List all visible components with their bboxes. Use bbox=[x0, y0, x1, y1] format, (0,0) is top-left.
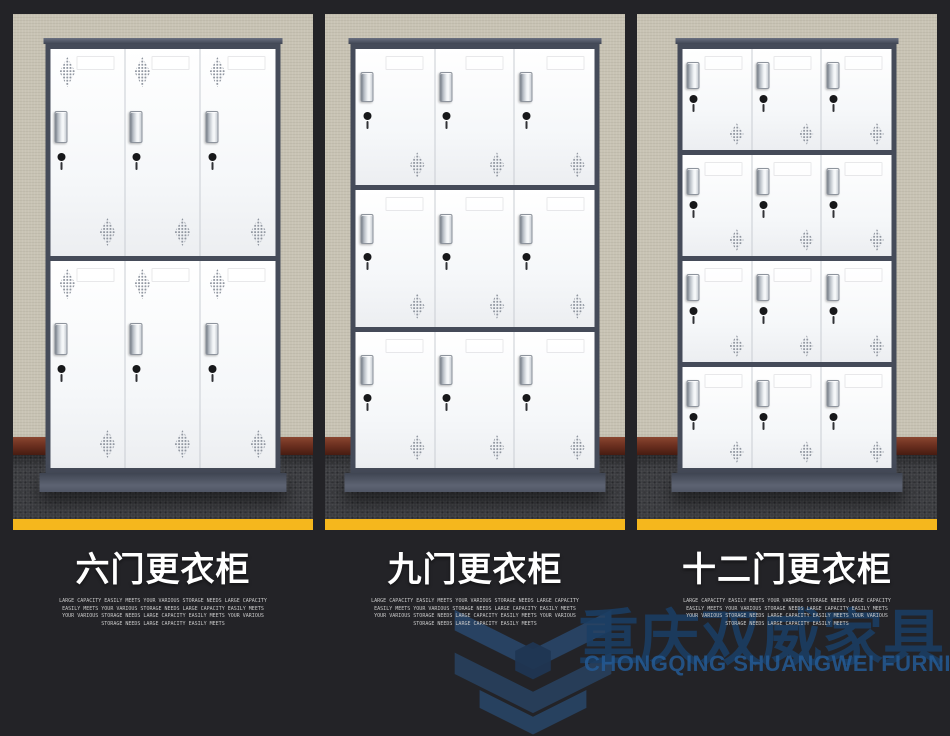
keyhole-lock-icon bbox=[523, 253, 531, 261]
vent-grille-bottom-icon bbox=[870, 441, 884, 463]
description-line: EASILY MEETS YOUR VARIOUS STORAGE NEEDS … bbox=[38, 606, 288, 614]
vent-grille-bottom-icon bbox=[870, 229, 884, 251]
vent-grille-bottom-icon bbox=[251, 430, 267, 458]
label-card-slot bbox=[844, 268, 882, 282]
vent-grille-bottom-icon bbox=[100, 218, 116, 246]
label-card-slot bbox=[546, 197, 584, 211]
door-handle bbox=[756, 168, 769, 195]
keyhole-lock-icon bbox=[829, 307, 837, 315]
locker-door bbox=[515, 190, 595, 326]
label-card-slot bbox=[844, 162, 882, 176]
label-card-slot bbox=[704, 374, 742, 388]
description-line: LARGE CAPACITY EASILY MEETS YOUR VARIOUS… bbox=[38, 598, 288, 606]
keyhole-lock-icon bbox=[523, 394, 531, 402]
vent-grille-bottom-icon bbox=[410, 152, 425, 177]
label-card-slot bbox=[546, 56, 584, 70]
yellow-accent-bar bbox=[13, 519, 313, 530]
label-card-slot bbox=[386, 56, 424, 70]
door-handle bbox=[205, 111, 218, 143]
label-card-slot bbox=[152, 268, 190, 282]
door-handle bbox=[440, 214, 453, 244]
keyhole-lock-icon bbox=[443, 253, 451, 261]
locker-door bbox=[683, 155, 753, 256]
label-card-slot bbox=[704, 56, 742, 70]
product-description: LARGE CAPACITY EASILY MEETS YOUR VARIOUS… bbox=[662, 598, 912, 628]
locker-door bbox=[683, 49, 753, 150]
locker-door bbox=[822, 261, 892, 362]
label-card-slot bbox=[774, 162, 812, 176]
door-handle bbox=[55, 111, 68, 143]
door-handle bbox=[360, 72, 373, 102]
locker-door bbox=[515, 332, 595, 468]
locker-door bbox=[435, 49, 515, 185]
door-handle bbox=[756, 380, 769, 407]
description-line: STORAGE NEEDS LARGE CAPACITY EASILY MEET… bbox=[350, 621, 600, 629]
vent-grille-bottom-icon bbox=[489, 294, 504, 319]
description-line: YOUR VARIOUS STORAGE NEEDS LARGE CAPACIT… bbox=[662, 613, 912, 621]
label-card-slot bbox=[386, 339, 424, 353]
locker-door bbox=[356, 332, 436, 468]
locker-door bbox=[752, 367, 822, 468]
label-card-slot bbox=[774, 374, 812, 388]
vent-grille-bottom-icon bbox=[730, 441, 744, 463]
keyhole-lock-icon bbox=[208, 153, 216, 161]
locker-door bbox=[683, 261, 753, 362]
product-panel: 十二门更衣柜 LARGE CAPACITY EASILY MEETS YOUR … bbox=[637, 14, 937, 708]
cabinet-base bbox=[40, 473, 287, 492]
label-card-slot bbox=[228, 56, 266, 70]
door-handle bbox=[440, 355, 453, 385]
description-line: LARGE CAPACITY EASILY MEETS YOUR VARIOUS… bbox=[350, 598, 600, 606]
vent-grille-bottom-icon bbox=[410, 435, 425, 460]
label-card-slot bbox=[466, 339, 504, 353]
product-photo bbox=[325, 14, 625, 519]
label-card-slot bbox=[844, 56, 882, 70]
vent-grille-bottom-icon bbox=[489, 435, 504, 460]
label-card-slot bbox=[774, 268, 812, 282]
product-photo bbox=[13, 14, 313, 519]
keyhole-lock-icon bbox=[363, 112, 371, 120]
keyhole-lock-icon bbox=[58, 153, 66, 161]
vent-grille-bottom-icon bbox=[489, 152, 504, 177]
door-handle bbox=[756, 62, 769, 89]
keyhole-lock-icon bbox=[829, 201, 837, 209]
locker-door bbox=[201, 261, 276, 468]
door-handle bbox=[130, 323, 143, 355]
vent-grille-bottom-icon bbox=[100, 430, 116, 458]
locker-door bbox=[822, 367, 892, 468]
locker-door bbox=[822, 155, 892, 256]
keyhole-lock-icon bbox=[443, 112, 451, 120]
keyhole-lock-icon bbox=[759, 307, 767, 315]
locker-cabinet bbox=[351, 44, 600, 492]
door-handle bbox=[360, 355, 373, 385]
door-handle bbox=[360, 214, 373, 244]
keyhole-lock-icon bbox=[690, 307, 698, 315]
vent-grille-top-icon bbox=[134, 57, 150, 87]
locker-door bbox=[126, 49, 201, 256]
keyhole-lock-icon bbox=[690, 413, 698, 421]
vent-grille-bottom-icon bbox=[175, 430, 191, 458]
vent-grille-bottom-icon bbox=[251, 218, 267, 246]
vent-grille-bottom-icon bbox=[799, 335, 813, 357]
cabinet-base bbox=[345, 473, 606, 492]
keyhole-lock-icon bbox=[690, 201, 698, 209]
product-panel: 九门更衣柜 LARGE CAPACITY EASILY MEETS YOUR V… bbox=[325, 14, 625, 708]
label-card-slot bbox=[844, 374, 882, 388]
door-handle bbox=[205, 323, 218, 355]
locker-door bbox=[356, 49, 436, 185]
description-line: STORAGE NEEDS LARGE CAPACITY EASILY MEET… bbox=[38, 621, 288, 629]
locker-door bbox=[51, 49, 126, 256]
yellow-accent-bar bbox=[325, 519, 625, 530]
locker-door bbox=[515, 49, 595, 185]
vent-grille-bottom-icon bbox=[870, 335, 884, 357]
vent-grille-bottom-icon bbox=[799, 441, 813, 463]
locker-door bbox=[356, 190, 436, 326]
vent-grille-bottom-icon bbox=[730, 229, 744, 251]
vent-grille-top-icon bbox=[210, 57, 226, 87]
door-handle bbox=[687, 168, 700, 195]
door-handle bbox=[440, 72, 453, 102]
locker-door bbox=[822, 49, 892, 150]
vent-grille-top-icon bbox=[210, 269, 226, 299]
keyhole-lock-icon bbox=[363, 394, 371, 402]
label-card-slot bbox=[386, 197, 424, 211]
product-description: LARGE CAPACITY EASILY MEETS YOUR VARIOUS… bbox=[38, 598, 288, 628]
panel-info: 十二门更衣柜 LARGE CAPACITY EASILY MEETS YOUR … bbox=[637, 551, 937, 708]
cabinet-frame bbox=[351, 44, 600, 473]
label-card-slot bbox=[228, 268, 266, 282]
description-line: YOUR VARIOUS STORAGE NEEDS LARGE CAPACIT… bbox=[38, 613, 288, 621]
product-detail-page: { "colors": { "background": "#232327", "… bbox=[0, 0, 950, 687]
keyhole-lock-icon bbox=[759, 201, 767, 209]
locker-door bbox=[51, 261, 126, 468]
locker-cabinet bbox=[46, 44, 281, 492]
door-handle bbox=[756, 274, 769, 301]
cabinet-base bbox=[672, 473, 903, 492]
vent-grille-bottom-icon bbox=[410, 294, 425, 319]
vent-grille-bottom-icon bbox=[570, 152, 585, 177]
locker-door bbox=[752, 49, 822, 150]
door-handle bbox=[520, 72, 533, 102]
label-card-slot bbox=[466, 197, 504, 211]
door-grid bbox=[51, 49, 276, 468]
vent-grille-bottom-icon bbox=[570, 294, 585, 319]
locker-door bbox=[201, 49, 276, 256]
description-line: STORAGE NEEDS LARGE CAPACITY EASILY MEET… bbox=[662, 621, 912, 629]
locker-door bbox=[435, 332, 515, 468]
door-handle bbox=[687, 380, 700, 407]
vent-grille-bottom-icon bbox=[799, 123, 813, 145]
vent-grille-bottom-icon bbox=[730, 335, 744, 357]
locker-door bbox=[752, 155, 822, 256]
locker-door bbox=[435, 190, 515, 326]
keyhole-lock-icon bbox=[208, 365, 216, 373]
product-panel: 六门更衣柜 LARGE CAPACITY EASILY MEETS YOUR V… bbox=[13, 14, 313, 708]
description-line: LARGE CAPACITY EASILY MEETS YOUR VARIOUS… bbox=[662, 598, 912, 606]
vent-grille-top-icon bbox=[59, 269, 75, 299]
panel-strip: 六门更衣柜 LARGE CAPACITY EASILY MEETS YOUR V… bbox=[0, 0, 950, 708]
product-title: 六门更衣柜 bbox=[13, 551, 313, 589]
product-title: 十二门更衣柜 bbox=[637, 551, 937, 589]
panel-info: 六门更衣柜 LARGE CAPACITY EASILY MEETS YOUR V… bbox=[13, 551, 313, 708]
vent-grille-bottom-icon bbox=[570, 435, 585, 460]
keyhole-lock-icon bbox=[759, 413, 767, 421]
door-grid bbox=[356, 49, 595, 468]
vent-grille-bottom-icon bbox=[799, 229, 813, 251]
vent-grille-top-icon bbox=[59, 57, 75, 87]
door-handle bbox=[520, 355, 533, 385]
description-line: EASILY MEETS YOUR VARIOUS STORAGE NEEDS … bbox=[662, 606, 912, 614]
yellow-accent-bar bbox=[637, 519, 937, 530]
locker-cabinet bbox=[678, 44, 897, 492]
door-grid bbox=[683, 49, 892, 468]
keyhole-lock-icon bbox=[523, 112, 531, 120]
keyhole-lock-icon bbox=[133, 153, 141, 161]
keyhole-lock-icon bbox=[133, 365, 141, 373]
keyhole-lock-icon bbox=[759, 95, 767, 103]
vent-grille-bottom-icon bbox=[870, 123, 884, 145]
keyhole-lock-icon bbox=[58, 365, 66, 373]
label-card-slot bbox=[704, 268, 742, 282]
label-card-slot bbox=[546, 339, 584, 353]
locker-door bbox=[683, 367, 753, 468]
locker-door bbox=[752, 261, 822, 362]
label-card-slot bbox=[77, 268, 115, 282]
keyhole-lock-icon bbox=[829, 413, 837, 421]
description-line: EASILY MEETS YOUR VARIOUS STORAGE NEEDS … bbox=[350, 606, 600, 614]
door-handle bbox=[520, 214, 533, 244]
product-title: 九门更衣柜 bbox=[325, 551, 625, 589]
keyhole-lock-icon bbox=[363, 253, 371, 261]
label-card-slot bbox=[77, 56, 115, 70]
cabinet-frame bbox=[46, 44, 281, 473]
door-handle bbox=[55, 323, 68, 355]
door-handle bbox=[687, 62, 700, 89]
locker-door bbox=[126, 261, 201, 468]
door-handle bbox=[826, 380, 839, 407]
label-card-slot bbox=[152, 56, 190, 70]
door-handle bbox=[826, 62, 839, 89]
vent-grille-bottom-icon bbox=[175, 218, 191, 246]
product-photo bbox=[637, 14, 937, 519]
panel-info: 九门更衣柜 LARGE CAPACITY EASILY MEETS YOUR V… bbox=[325, 551, 625, 708]
keyhole-lock-icon bbox=[443, 394, 451, 402]
vent-grille-top-icon bbox=[134, 269, 150, 299]
keyhole-lock-icon bbox=[829, 95, 837, 103]
door-handle bbox=[687, 274, 700, 301]
label-card-slot bbox=[774, 56, 812, 70]
cabinet-frame bbox=[678, 44, 897, 473]
door-handle bbox=[826, 168, 839, 195]
vent-grille-bottom-icon bbox=[730, 123, 744, 145]
description-line: YOUR VARIOUS STORAGE NEEDS LARGE CAPACIT… bbox=[350, 613, 600, 621]
keyhole-lock-icon bbox=[690, 95, 698, 103]
door-handle bbox=[826, 274, 839, 301]
door-handle bbox=[130, 111, 143, 143]
label-card-slot bbox=[466, 56, 504, 70]
label-card-slot bbox=[704, 162, 742, 176]
product-description: LARGE CAPACITY EASILY MEETS YOUR VARIOUS… bbox=[350, 598, 600, 628]
